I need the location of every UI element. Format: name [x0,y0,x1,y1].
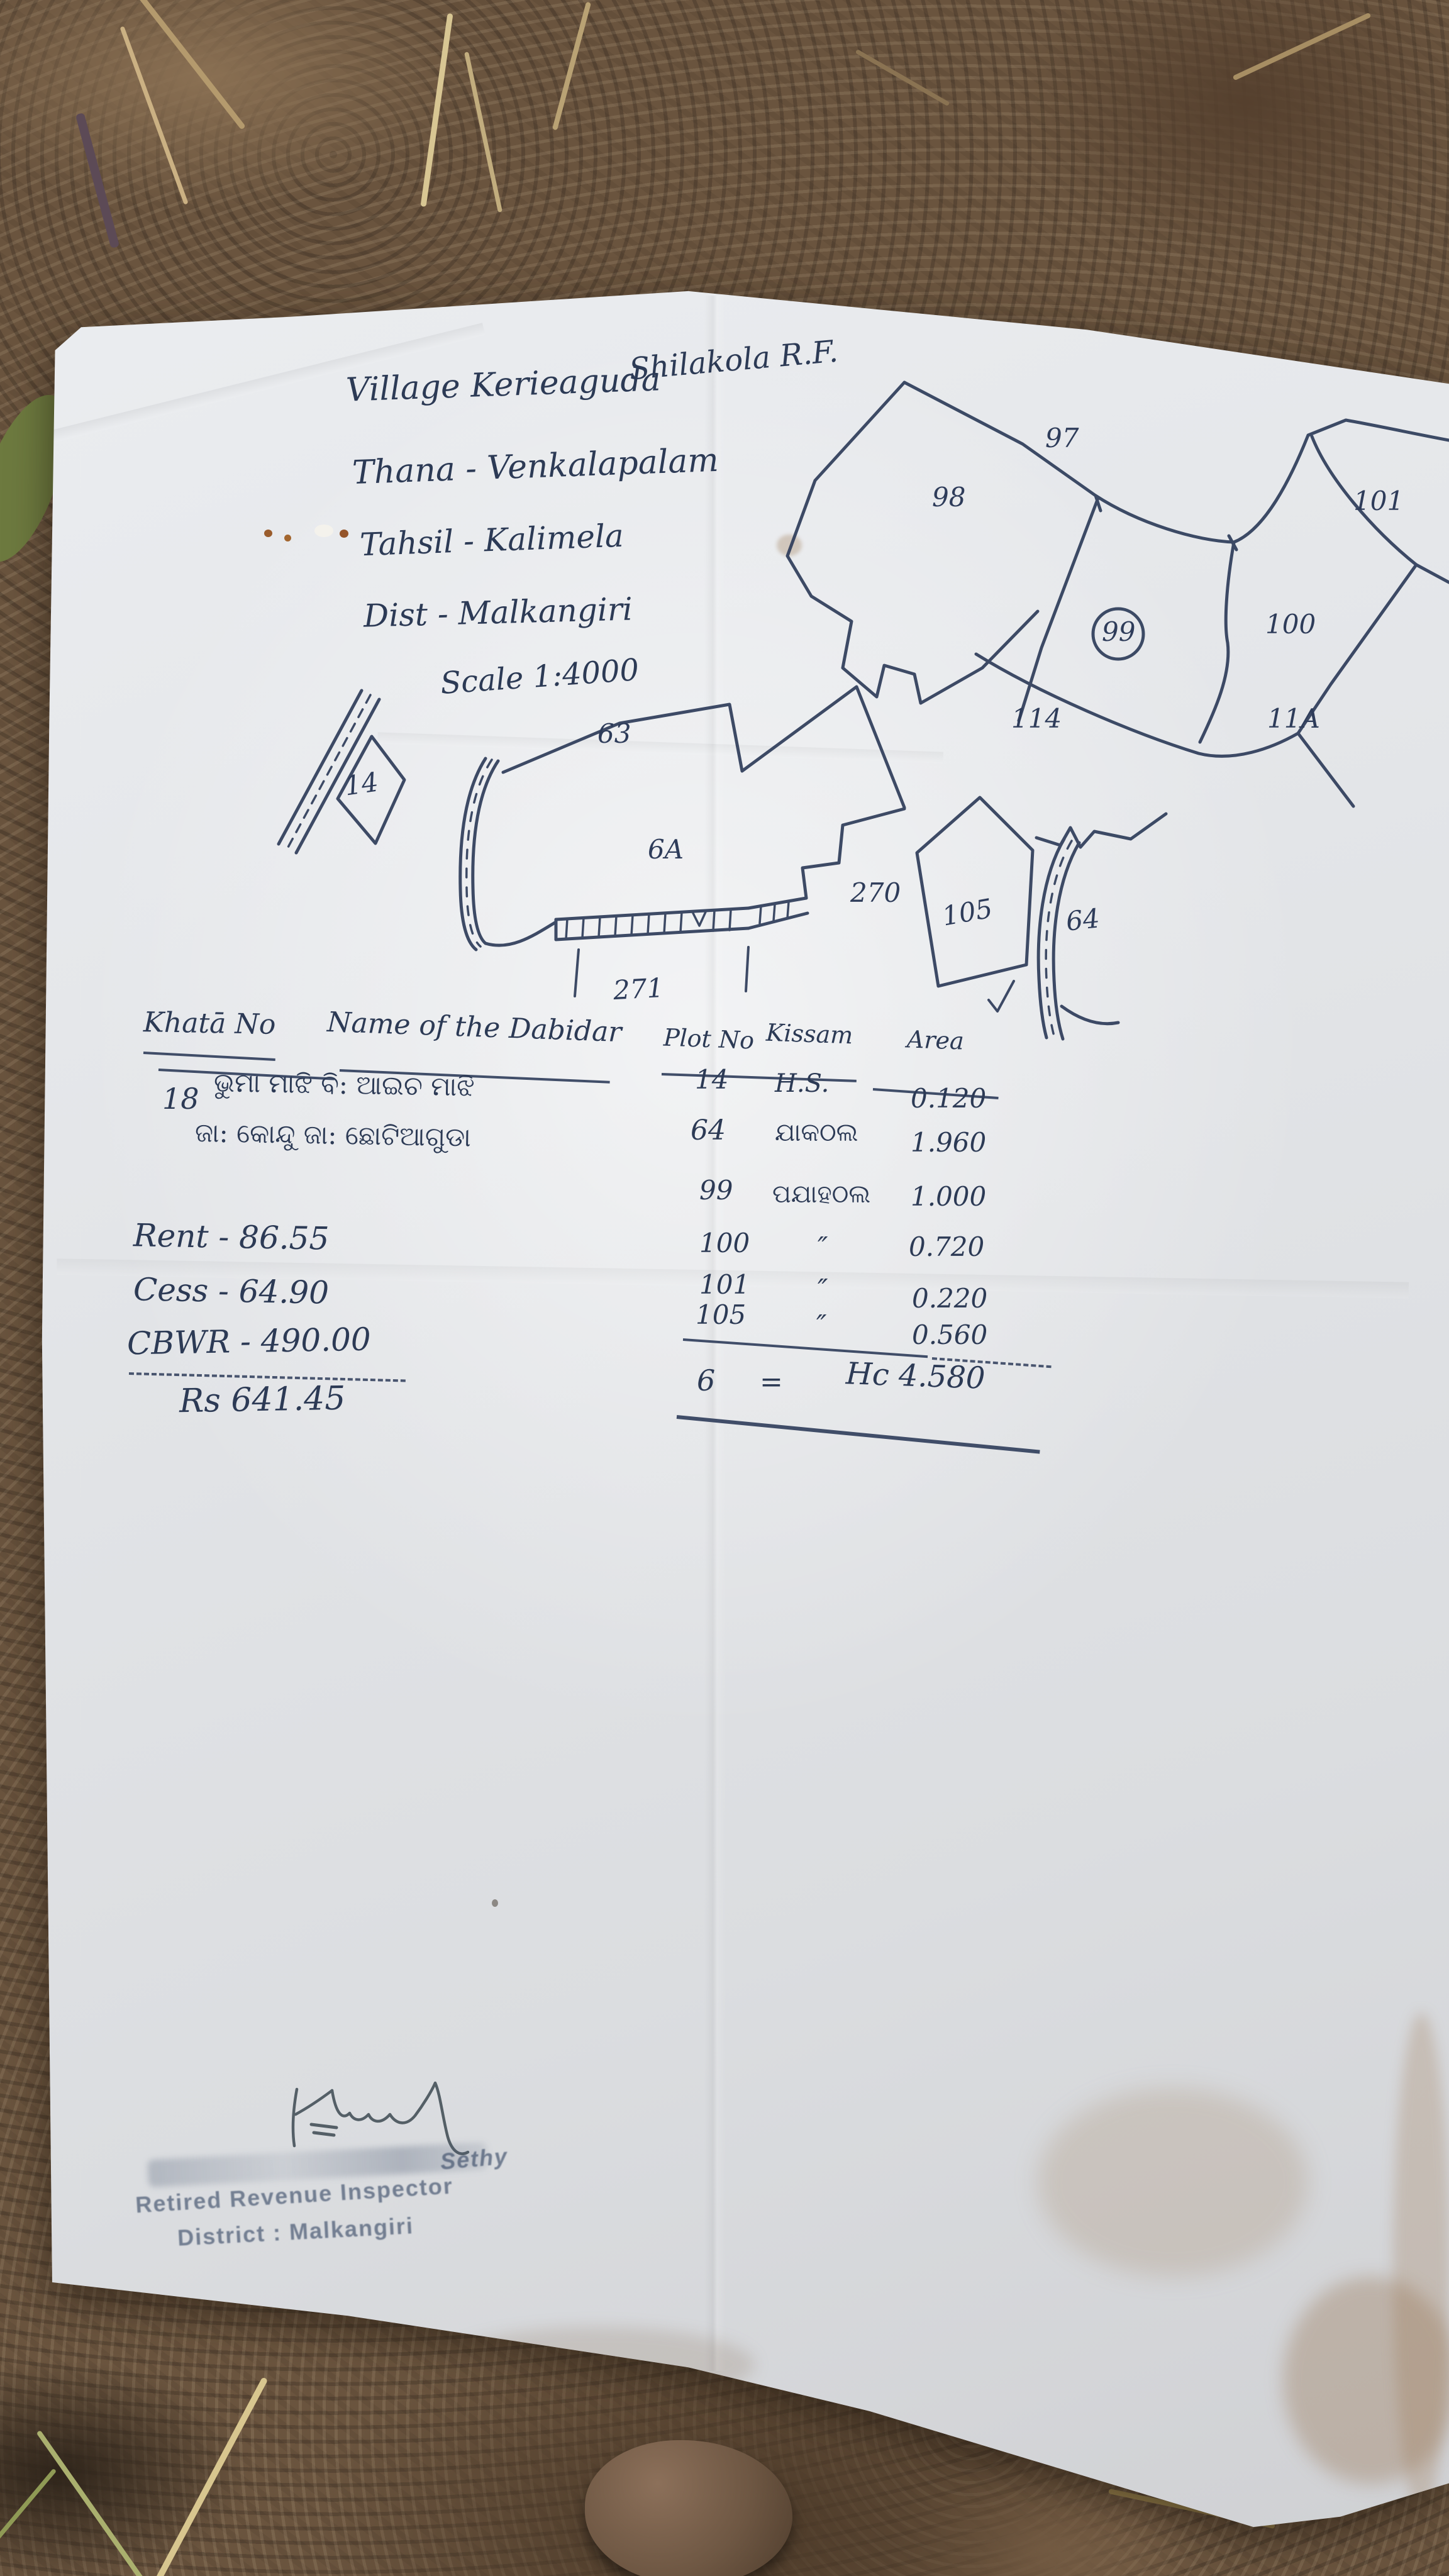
rent-line: Rent - 86.55 [133,1217,330,1257]
torn-patch [314,525,333,537]
row-area: 0.220 [912,1283,987,1314]
map-plot-label-100: 100 [1265,609,1316,640]
map-plot-label-11A: 11A [1267,703,1320,734]
col-header-area: Area [906,1025,964,1055]
paper-crease [377,732,943,763]
row-area: 1.960 [911,1127,986,1158]
charges-total-line: Rs 641.45 [179,1380,345,1421]
tahsil-line: Tahsil - Kalimela [359,518,625,563]
row-area: 0.560 [912,1319,987,1350]
stain [777,535,802,556]
dabidar-name-line1: ଭୁମା ମାଝି ବି: ଆଇଚ ମାଝି [214,1067,475,1102]
stamp-district-line: District : Malkangiri [177,2212,414,2251]
row-plot: 14 [695,1064,728,1095]
ink-speck [492,1899,498,1907]
total-plot-count: 6 [697,1363,715,1397]
row-plot: 101 [699,1269,750,1300]
dabidar-name-line2: ଜା: କୋନ୍ଦୁ ଜା: ଛୋଟିଆଗୁଡା [195,1117,472,1153]
row-kissam: H.S. [775,1069,829,1098]
total-equals: = [760,1366,783,1398]
map-plot-label-6A: 6A [648,834,684,865]
village-line: Village Kerieaguda [345,360,661,409]
rust-dot [284,535,291,541]
underline [143,1052,275,1061]
scale-line: Scale 1:4000 [439,652,640,701]
cess-line: Cess - 64.90 [133,1271,330,1311]
map-plot-label-97: 97 [1045,423,1079,453]
stain [1283,2277,1449,2484]
rust-dot [340,530,348,538]
map-plot-label-270: 270 [850,877,901,908]
row-kissam: ଯାକଠଲ [775,1118,858,1147]
row-plot: 99 [699,1175,733,1206]
map-plot-label-63: 63 [597,718,631,749]
row-plot: 64 [691,1114,726,1146]
paper-crease [704,296,726,2371]
total-double-rule [677,1415,1040,1454]
row-area: 1.000 [911,1181,986,1212]
forest-block-label: Shilakola R.F. [628,334,839,387]
thana-line: Thana - Venkalapalam [352,441,719,492]
map-plot-label-271: 271 [613,972,665,1006]
row-kissam: ″ [818,1231,828,1263]
row-kissam: ″ [818,1274,828,1306]
row-kissam: ପଯାହଠଲ [772,1180,870,1209]
col-header-plot: Plot No [663,1023,755,1054]
total-rule [683,1338,928,1358]
signature-ink [293,2083,468,2154]
district-line: Dist - Malkangiri [363,591,633,634]
col-header-kissam: Kissam [765,1019,853,1050]
stain [1038,2088,1308,2277]
document-paper: Village Kerieaguda Shilakola R.F. Thana … [0,0,1449,2576]
stain [440,2327,755,2402]
row-area: 0.720 [909,1231,984,1262]
khata-number: 18 [162,1082,199,1116]
paper-wrapper: Village Kerieaguda Shilakola R.F. Thana … [0,0,1449,2576]
map-plot-label-99: 99 [1102,616,1135,647]
col-header-khata: Khatā No [143,1006,276,1041]
rust-dot [264,530,272,537]
map-plot-label-98: 98 [932,482,965,513]
map-plot-label-105: 105 [940,892,994,931]
cbwr-line: CBWR - 490.00 [127,1321,372,1362]
photo-of-land-record-document: Village Kerieaguda Shilakola R.F. Thana … [0,0,1449,2576]
row-plot: 100 [699,1228,750,1258]
row-area: 0.120 [911,1083,986,1114]
row-plot: 105 [696,1299,746,1330]
total-area-hectares: Hc 4.580 [845,1356,985,1396]
map-plot-label-114: 114 [1011,703,1062,734]
stamp-name-fragment: Sethy [439,2143,509,2175]
map-plot-label-101: 101 [1353,486,1404,516]
map-plot-label-64: 64 [1065,902,1101,936]
col-header-name: Name of the Dabidar [326,1006,622,1048]
row-kissam: ″ [816,1309,826,1341]
map-plot-label-14: 14 [343,767,380,802]
stain [1393,2012,1449,2516]
